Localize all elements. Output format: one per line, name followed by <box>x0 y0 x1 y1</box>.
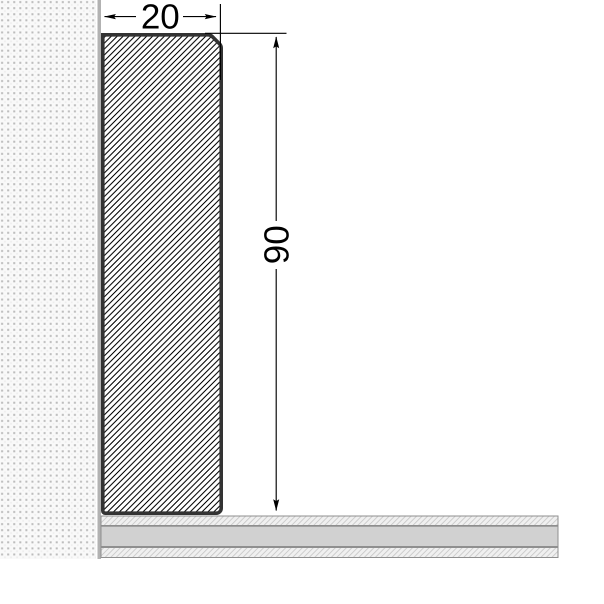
svg-text:90: 90 <box>258 225 297 264</box>
svg-text:20: 20 <box>141 0 180 37</box>
